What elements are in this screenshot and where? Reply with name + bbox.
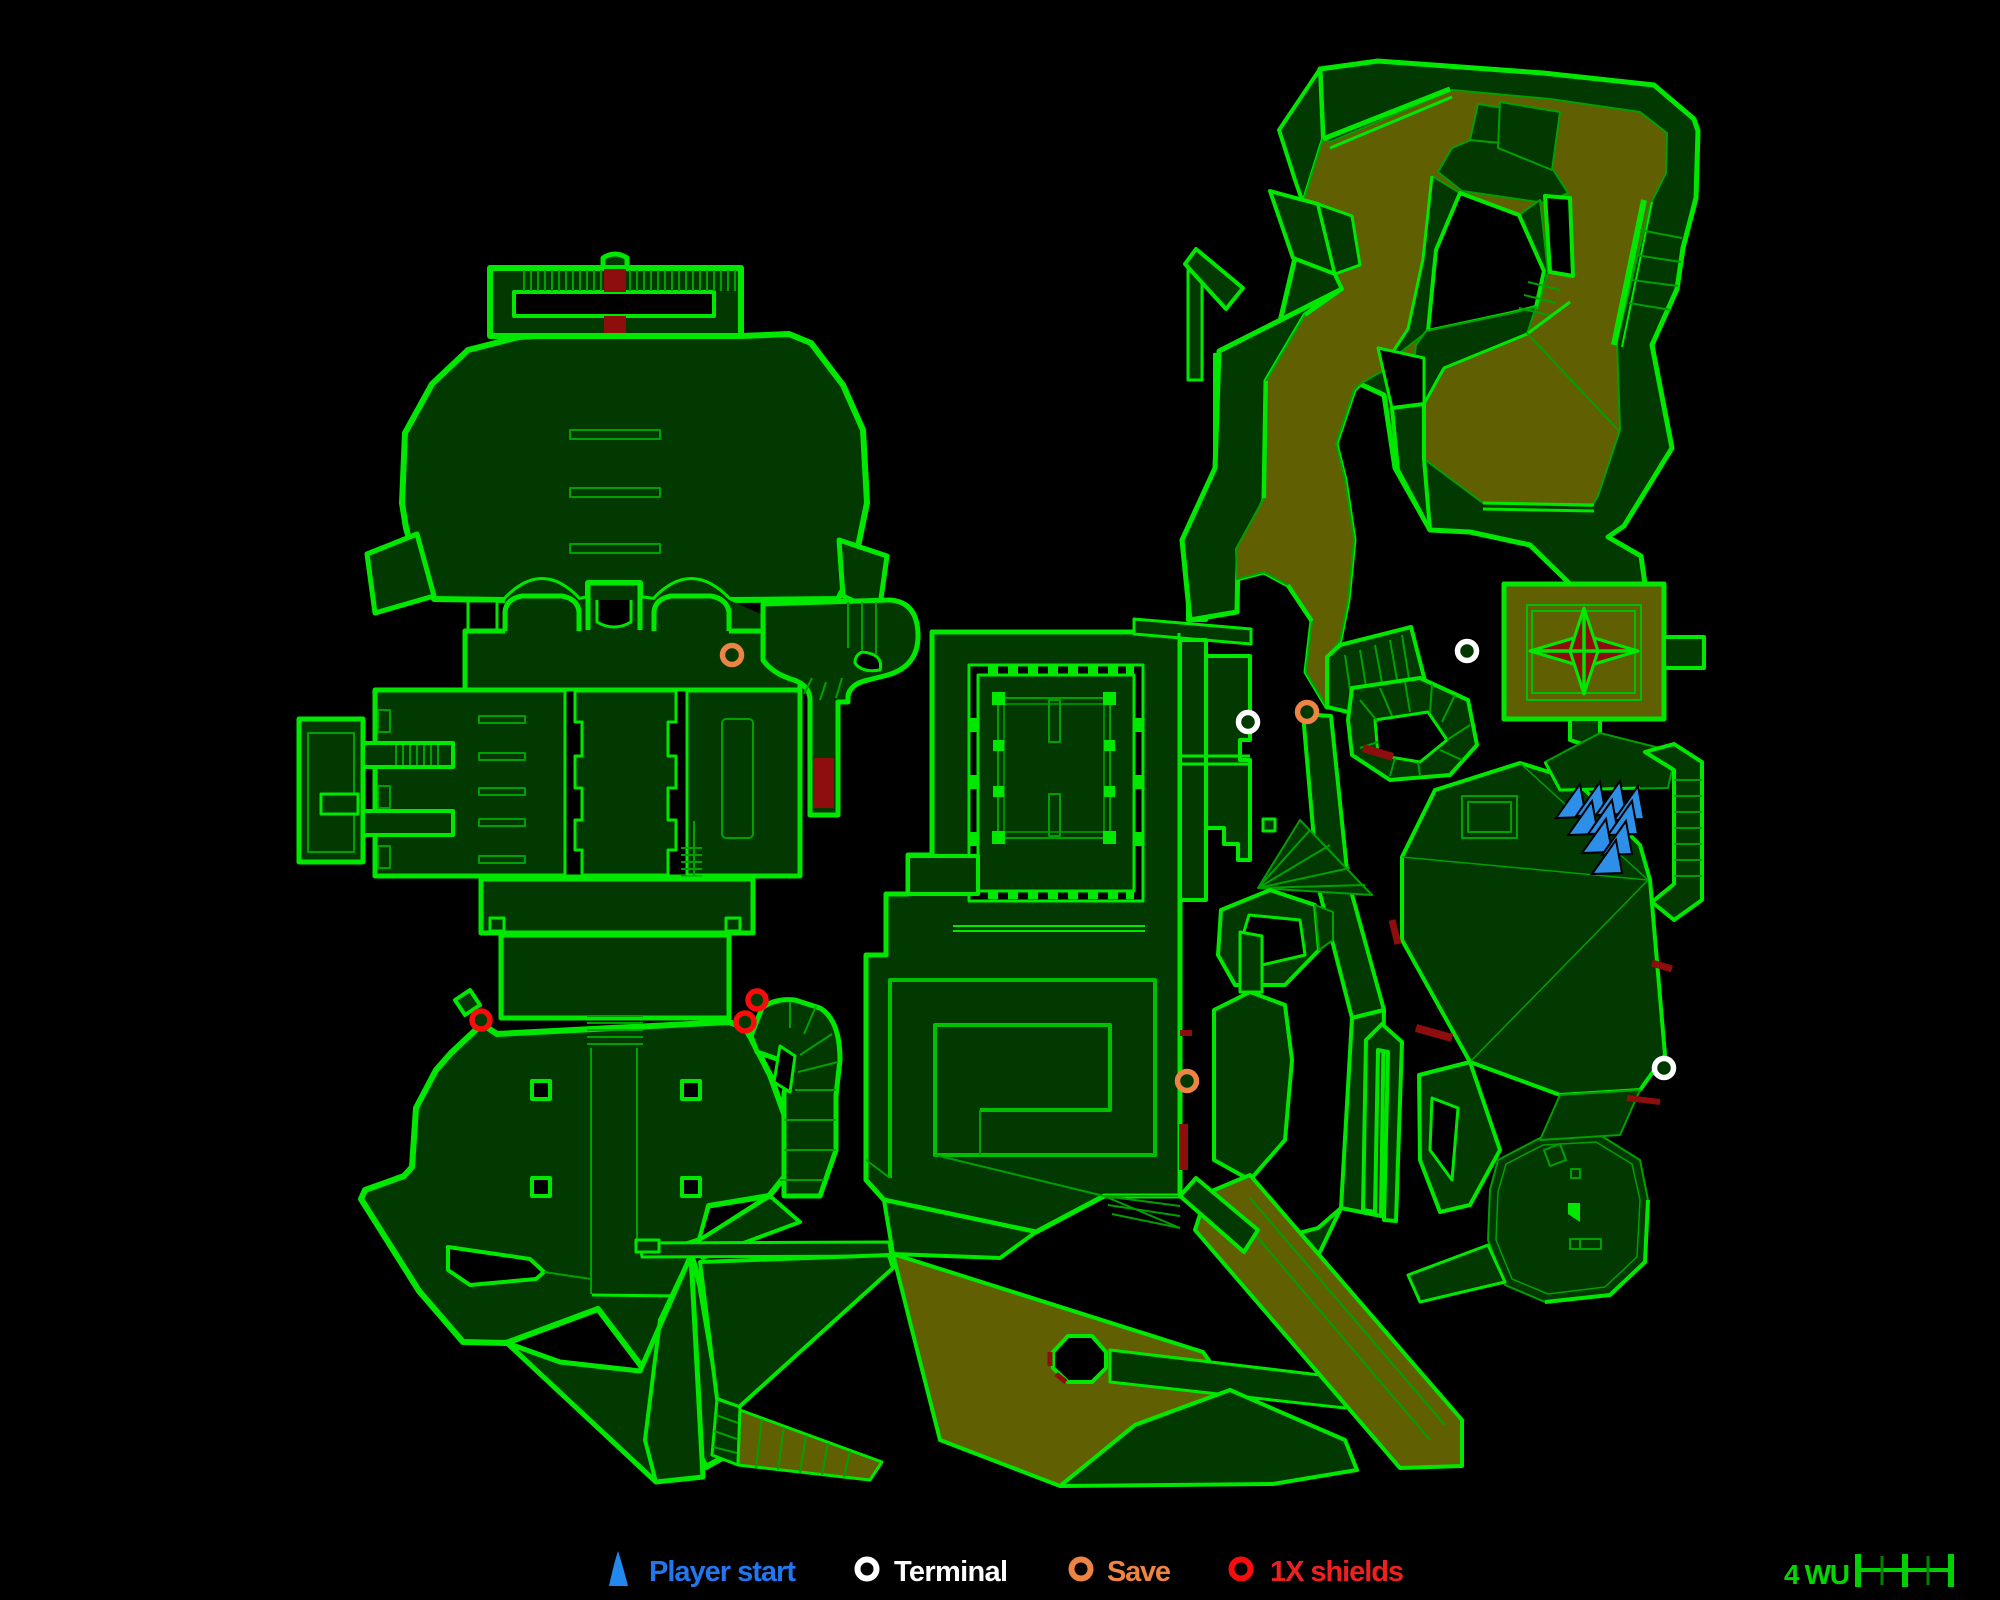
- svg-text:Terminal: Terminal: [894, 1556, 1008, 1588]
- svg-text:Player start: Player start: [649, 1556, 796, 1588]
- svg-text:Save: Save: [1107, 1556, 1171, 1588]
- svg-text:4 WU: 4 WU: [1784, 1559, 1850, 1590]
- svg-text:1X shields: 1X shields: [1270, 1556, 1404, 1588]
